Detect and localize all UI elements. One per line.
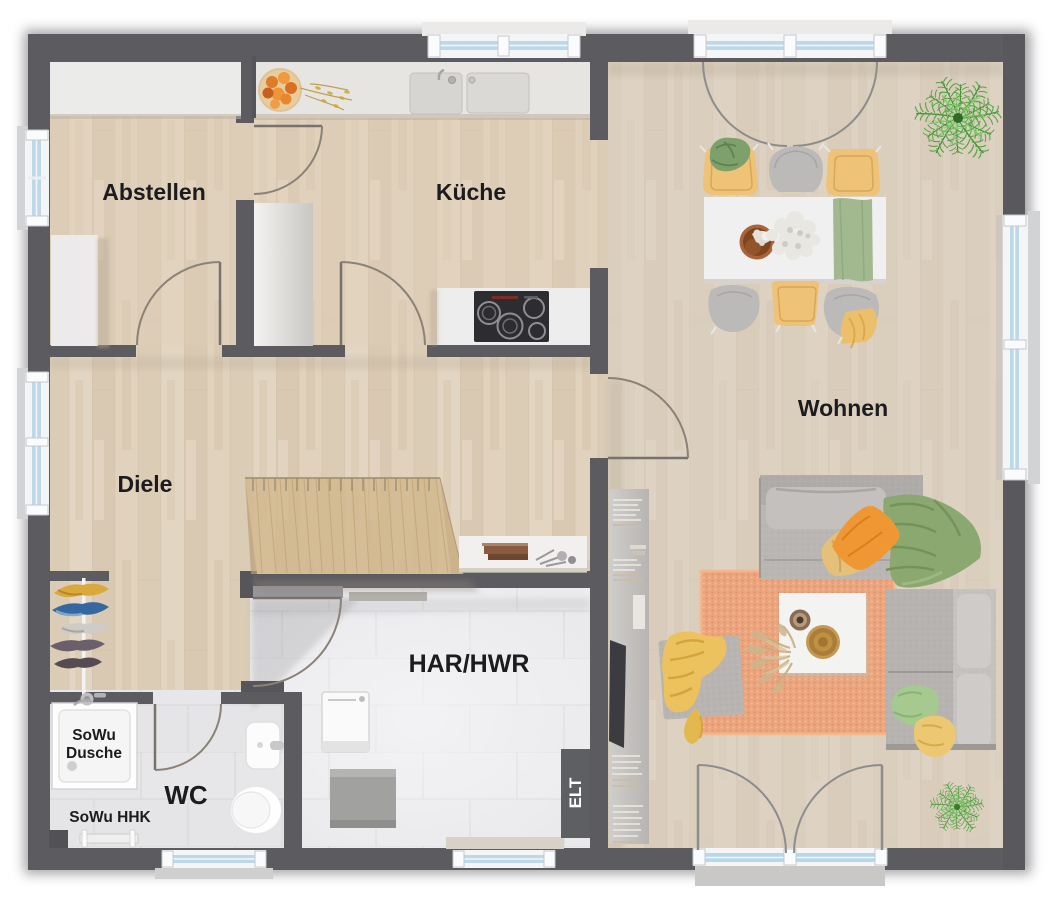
svg-text:Dusche: Dusche bbox=[66, 745, 122, 762]
svg-text:SoWu: SoWu bbox=[72, 727, 116, 744]
svg-text:Diele: Diele bbox=[118, 471, 173, 497]
svg-text:WC: WC bbox=[164, 780, 208, 810]
svg-text:HAR/HWR: HAR/HWR bbox=[409, 650, 530, 678]
svg-text:Küche: Küche bbox=[436, 179, 506, 205]
svg-text:Wohnen: Wohnen bbox=[798, 395, 888, 421]
svg-text:SoWu HHK: SoWu HHK bbox=[69, 809, 151, 826]
svg-text:ELT: ELT bbox=[566, 777, 585, 808]
svg-text:Abstellen: Abstellen bbox=[102, 179, 206, 205]
